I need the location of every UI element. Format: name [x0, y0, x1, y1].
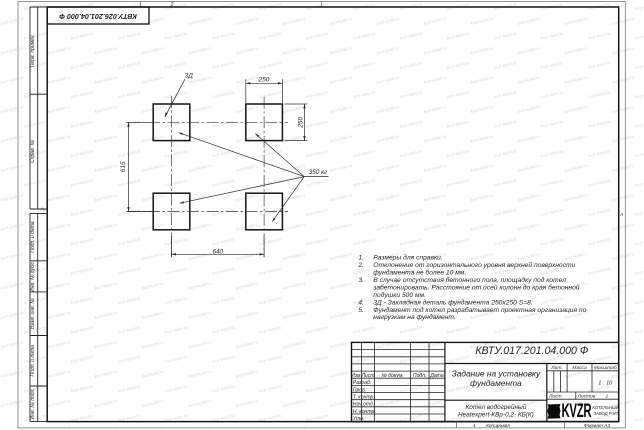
svg-text:Дата: Дата [429, 373, 444, 379]
svg-text:3Д - Закладная деталь фундамен: 3Д - Закладная деталь фундамента 250х250… [373, 298, 533, 306]
svg-text:фундамента не более 10 мм.: фундамента не более 10 мм. [373, 269, 466, 277]
svg-text:Лист: Лист [548, 394, 562, 400]
svg-text:5.: 5. [358, 307, 364, 314]
svg-text:Размеры для справки.: Размеры для справки. [373, 254, 443, 262]
svg-text:Задание на установку: Задание на установку [452, 368, 541, 378]
svg-text:№ докум.: № докум. [381, 373, 403, 379]
svg-text:ЗАВОД РЭП: ЗАВОД РЭП [593, 411, 618, 416]
svg-text:3.: 3. [358, 277, 364, 284]
svg-text:Масса: Масса [572, 365, 587, 371]
svg-text:250: 250 [258, 77, 270, 84]
svg-text:Взам. инв. №: Взам. инв. № [30, 298, 36, 330]
svg-text:Н. контр.: Н. контр. [353, 409, 376, 415]
svg-text:КВТУ.017.201.04.000 Ф: КВТУ.017.201.04.000 Ф [475, 345, 588, 357]
svg-text:А: А [619, 212, 623, 217]
svg-text:Формат А3: Формат А3 [584, 423, 611, 429]
svg-text:Перв. примен.: Перв. примен. [30, 34, 36, 67]
svg-text:Инв. № дубл.: Инв. № дубл. [30, 261, 36, 292]
svg-text:250: 250 [298, 117, 305, 129]
svg-text:Подп. и дата: Подп. и дата [30, 345, 36, 377]
svg-text:Листов: Листов [577, 394, 596, 400]
svg-text:3Д: 3Д [185, 73, 194, 80]
svg-text:фундамента: фундамента [470, 378, 522, 388]
svg-text:615: 615 [120, 161, 127, 172]
svg-text:Разраб.: Разраб. [353, 380, 371, 386]
svg-text:Пров.: Пров. [353, 387, 366, 393]
svg-text:КОТЕЛЬНЫЙ: КОТЕЛЬНЫЙ [592, 405, 618, 410]
svg-text:Справ. №: Справ. № [30, 140, 36, 163]
svg-text:350 кг: 350 кг [309, 169, 328, 176]
svg-text:забетонировать. Расстояние от: забетонировать. Расстояние от осей колон… [372, 283, 580, 291]
svg-text:640: 640 [212, 249, 223, 256]
svg-text:1: 1 [473, 423, 476, 429]
svg-text:Масштаб: Масштаб [594, 365, 617, 371]
svg-text:Фундамент под котел разрабатыв: Фундамент под котел разрабатывает проект… [373, 306, 586, 314]
svg-text:Котел водогрейный: Котел водогрейный [466, 403, 527, 411]
svg-text:1.: 1. [358, 255, 364, 262]
svg-text:нагрузкам на фундамент.: нагрузкам на фундамент. [373, 313, 456, 321]
svg-text:Heatexpert-КВр-0,2- КБ(К): Heatexpert-КВр-0,2- КБ(К) [458, 411, 534, 418]
svg-text:Копировал: Копировал [486, 423, 510, 429]
svg-text:Лист: Лист [360, 373, 374, 379]
svg-text:Подп. и дата: Подп. и дата [30, 221, 36, 253]
svg-text:Инв. № подл.: Инв. № подл. [30, 388, 36, 419]
svg-text:КВТУ.026.201.04.000 Ф: КВТУ.026.201.04.000 Ф [59, 12, 137, 21]
svg-text:4.: 4. [358, 299, 364, 306]
svg-text:Отклонение от горизонтального: Отклонение от горизонтального уровня вер… [373, 261, 575, 269]
svg-text:2.: 2. [357, 262, 364, 269]
svg-text:1 : 10: 1 : 10 [598, 380, 613, 386]
svg-text:1: 1 [606, 394, 609, 400]
svg-text:Изм.: Изм. [351, 373, 362, 379]
svg-text:Нач.отд.: Нач.отд. [353, 402, 374, 408]
svg-text:Подп.: Подп. [413, 373, 427, 379]
svg-text:KVZR: KVZR [562, 401, 592, 422]
svg-text:Т. контр.: Т. контр. [353, 395, 375, 401]
svg-text:подушки 500 мм.: подушки 500 мм. [373, 291, 426, 299]
svg-text:В случае отсутствия бетонного: В случае отсутствия бетонного пола, площ… [373, 276, 566, 284]
svg-text:Лит.: Лит. [550, 365, 562, 371]
svg-text:Утв.: Утв. [353, 416, 365, 422]
